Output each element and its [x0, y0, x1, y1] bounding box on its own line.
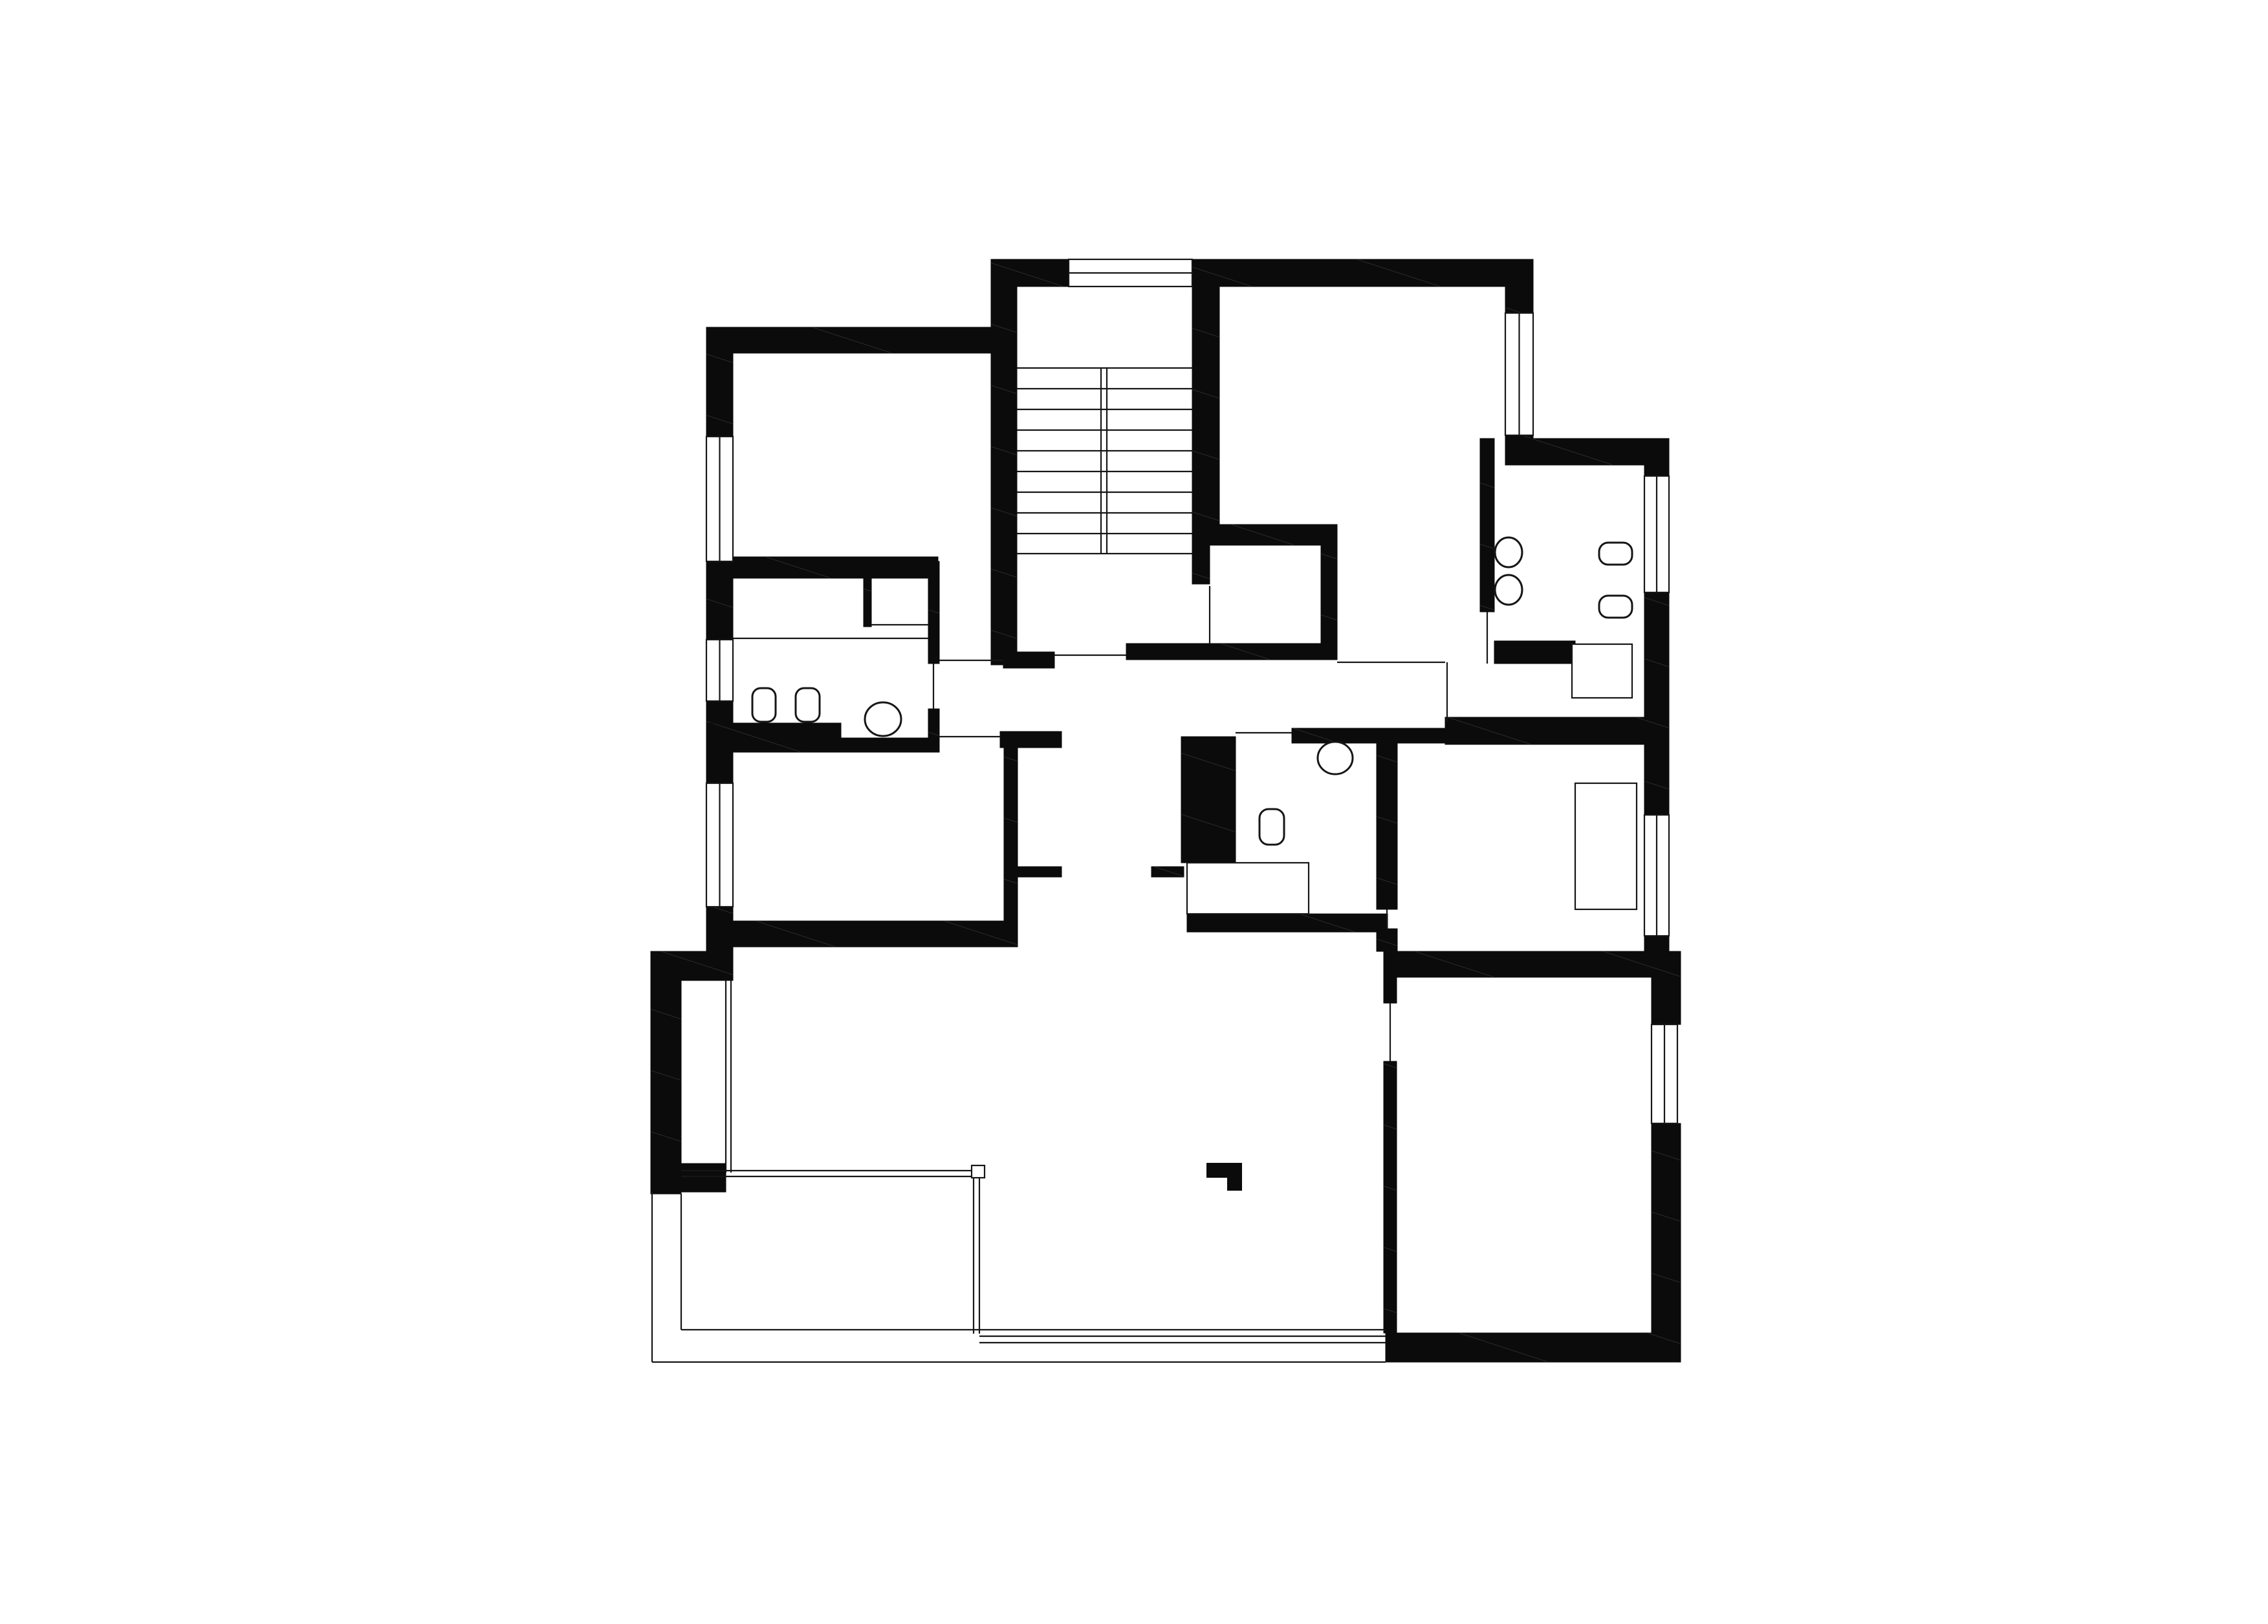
wall-segment — [991, 259, 1069, 287]
wall-segment — [1644, 465, 1669, 476]
wall-segment — [706, 353, 733, 437]
wall-segment — [1644, 717, 1669, 815]
wall-segment — [706, 921, 1018, 947]
wall-segment — [1505, 438, 1669, 465]
wall-segment — [841, 738, 939, 752]
wall-segment — [1151, 867, 1184, 877]
floor-plan-drawing — [26, 10, 2268, 1614]
wall-segment — [706, 723, 841, 752]
wall-segment — [991, 287, 1017, 665]
shower-tray-fixture — [1572, 644, 1632, 698]
wall-segment — [1384, 1061, 1397, 1333]
sink-fixture — [865, 702, 901, 736]
wall-segment — [1505, 287, 1533, 313]
wall-segment — [1494, 641, 1575, 664]
toilet-fixture — [1599, 596, 1632, 618]
wall-segment — [1192, 525, 1337, 545]
wall-segment — [1384, 951, 1681, 977]
wall-segment — [651, 951, 733, 980]
wall-segment — [1292, 728, 1445, 743]
wall-segment — [1003, 652, 1054, 668]
wall-segment — [1018, 867, 1062, 877]
wall-segment — [1377, 743, 1397, 909]
wall-segment — [1386, 1333, 1681, 1362]
wall-segment — [928, 709, 939, 738]
terrace-post — [972, 1165, 985, 1178]
wall-segment — [1126, 644, 1337, 660]
wall-segment — [651, 1164, 726, 1192]
sink-fixture — [1495, 575, 1522, 605]
closet-outline — [1575, 783, 1637, 909]
wall-segment — [1187, 914, 1388, 932]
wall-segment — [1192, 287, 1219, 525]
bathtub-fixture — [1187, 863, 1309, 914]
sink-fixture — [1318, 742, 1353, 774]
sink-fixture — [1495, 537, 1522, 567]
wall-segment — [1384, 977, 1397, 1003]
wall-segment — [1192, 545, 1210, 584]
wall-segment — [706, 557, 938, 578]
toilet-fixture — [752, 688, 776, 722]
wall-segment — [864, 567, 871, 627]
wall-segment — [1652, 1123, 1681, 1333]
wall-segment — [1480, 438, 1494, 612]
toilet-fixture — [796, 688, 820, 722]
wall-segment — [1181, 737, 1236, 863]
wall-segment — [1644, 592, 1669, 717]
wall-segment — [1192, 259, 1533, 287]
wall-segment — [1644, 936, 1669, 951]
wall-segment — [651, 980, 681, 1194]
paper-background — [26, 10, 2268, 1614]
toilet-fixture — [1599, 543, 1632, 565]
floor-plan-sheet — [26, 10, 2268, 1614]
toilet-fixture — [1259, 809, 1284, 845]
wall-segment — [706, 327, 1017, 353]
wall-segment — [1445, 717, 1669, 744]
wall-segment — [1321, 545, 1337, 644]
wall-segment — [1004, 743, 1018, 944]
